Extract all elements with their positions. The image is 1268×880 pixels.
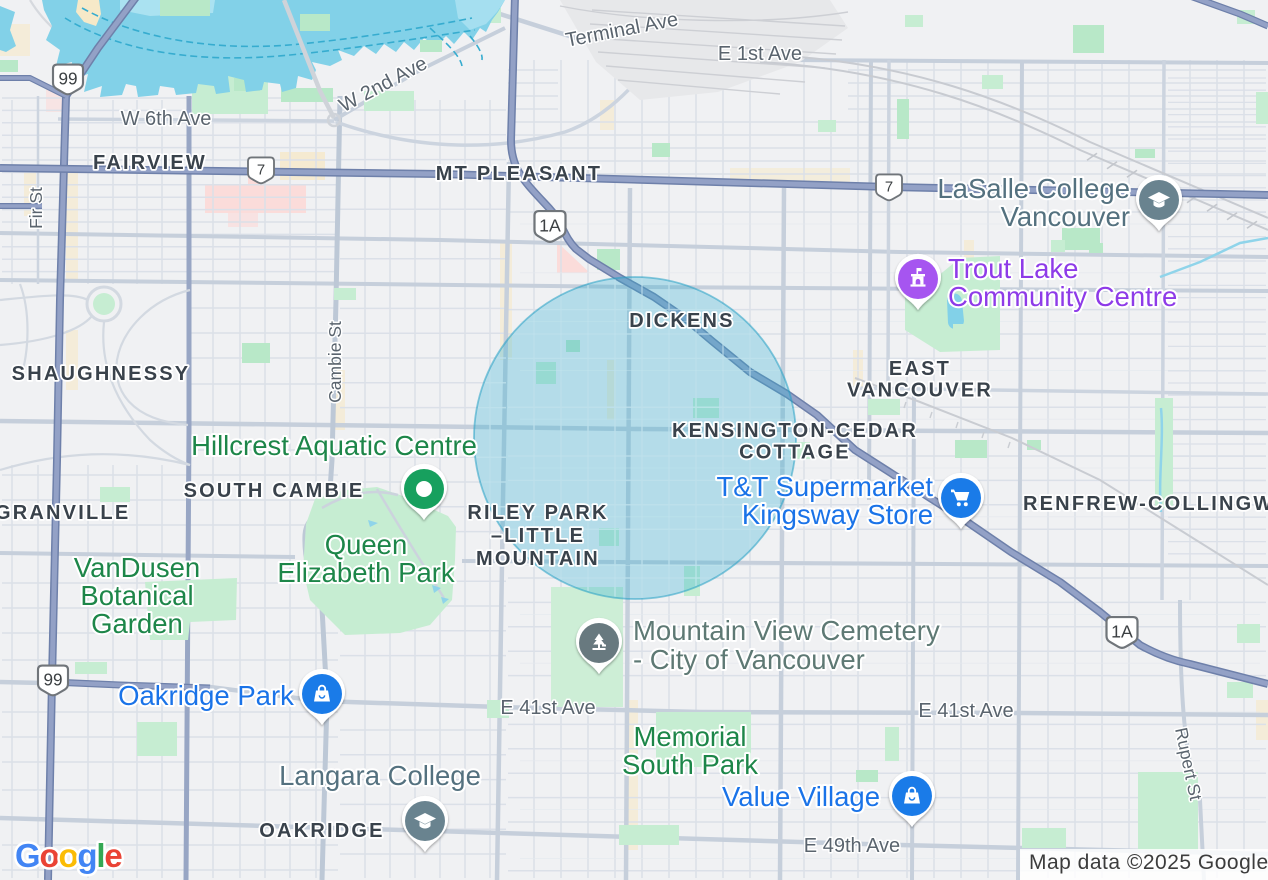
svg-text:Botanical: Botanical xyxy=(80,580,193,611)
svg-text:7: 7 xyxy=(257,163,265,179)
svg-text:Cambie St: Cambie St xyxy=(325,321,345,403)
svg-text:GRANVILLE: GRANVILLE xyxy=(0,502,130,524)
svg-text:Vancouver: Vancouver xyxy=(1001,201,1130,232)
svg-text:VANCOUVER: VANCOUVER xyxy=(847,380,993,402)
svg-text:E 41st Ave: E 41st Ave xyxy=(500,697,595,719)
svg-text:E 1st Ave: E 1st Ave xyxy=(718,43,802,65)
svg-text:W 6th Ave: W 6th Ave xyxy=(121,108,212,130)
svg-text:RILEY PARK: RILEY PARK xyxy=(467,502,608,524)
svg-text:Langara College: Langara College xyxy=(279,760,481,791)
svg-text:EAST: EAST xyxy=(889,358,951,380)
svg-text:KENSINGTON-CEDAR: KENSINGTON-CEDAR xyxy=(672,420,918,442)
svg-text:Value Village: Value Village xyxy=(722,781,880,812)
svg-text:1A: 1A xyxy=(1111,622,1133,642)
svg-text:RENFREW-COLLINGWOOD: RENFREW-COLLINGWOOD xyxy=(1023,493,1268,515)
svg-text:Kingsway Store: Kingsway Store xyxy=(742,499,933,530)
svg-text:COTTAGE: COTTAGE xyxy=(739,442,851,464)
svg-text:Memorial: Memorial xyxy=(633,721,746,752)
svg-text:Google: Google xyxy=(15,837,122,874)
svg-text:Map data ©2025 Google: Map data ©2025 Google xyxy=(1029,851,1268,874)
svg-text:–LITTLE: –LITTLE xyxy=(491,525,585,547)
svg-text:FAIRVIEW: FAIRVIEW xyxy=(93,152,207,174)
svg-text:MOUNTAIN: MOUNTAIN xyxy=(476,548,600,570)
svg-text:DICKENS: DICKENS xyxy=(629,310,734,332)
svg-text:- City of Vancouver: - City of Vancouver xyxy=(633,644,865,675)
svg-text:LaSalle College: LaSalle College xyxy=(937,173,1130,204)
svg-text:Hillcrest Aquatic Centre: Hillcrest Aquatic Centre xyxy=(191,430,477,461)
svg-text:SHAUGHNESSY: SHAUGHNESSY xyxy=(12,363,191,385)
svg-text:South Park: South Park xyxy=(622,749,758,780)
svg-text:7: 7 xyxy=(885,180,893,196)
svg-text:SOUTH CAMBIE: SOUTH CAMBIE xyxy=(184,480,365,502)
svg-text:Community Centre: Community Centre xyxy=(948,281,1177,312)
svg-text:OAKRIDGE: OAKRIDGE xyxy=(259,820,384,842)
svg-text:T&T Supermarket: T&T Supermarket xyxy=(716,471,933,502)
svg-text:99: 99 xyxy=(43,669,62,689)
svg-text:99: 99 xyxy=(58,68,77,88)
svg-text:Trout Lake: Trout Lake xyxy=(948,253,1078,284)
svg-text:MT PLEASANT: MT PLEASANT xyxy=(436,163,602,185)
svg-text:Elizabeth Park: Elizabeth Park xyxy=(277,557,455,588)
svg-text:Garden: Garden xyxy=(91,608,183,639)
svg-text:Queen: Queen xyxy=(325,529,408,560)
svg-text:VanDusen: VanDusen xyxy=(74,552,200,583)
svg-text:Fir St: Fir St xyxy=(26,187,46,229)
svg-text:E 49th Ave: E 49th Ave xyxy=(804,835,900,857)
svg-text:1A: 1A xyxy=(539,216,561,236)
svg-text:Mountain View Cemetery: Mountain View Cemetery xyxy=(633,615,940,646)
svg-text:E 41st Ave: E 41st Ave xyxy=(918,700,1013,722)
svg-text:Oakridge Park: Oakridge Park xyxy=(118,680,294,711)
